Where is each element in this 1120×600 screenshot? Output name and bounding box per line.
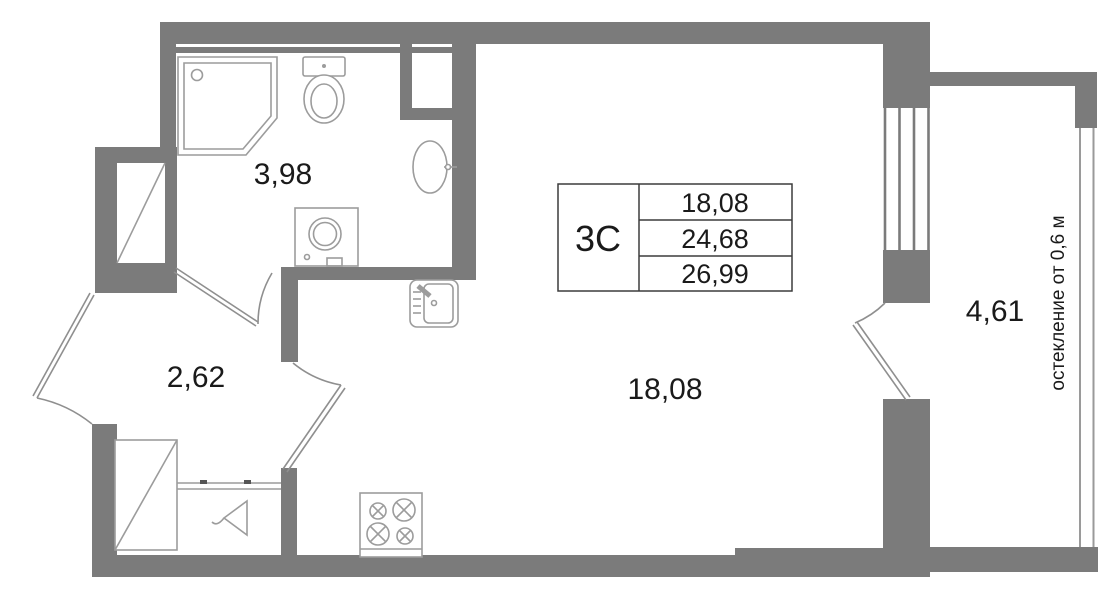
- bathroom-area-label: 3,98: [254, 158, 312, 191]
- bathroom-sink-faucet: [446, 165, 451, 170]
- wall-hall-stub-upper: [281, 267, 298, 362]
- balcony-glazing: [1080, 128, 1094, 547]
- wall-bathroom-bottom: [281, 267, 476, 280]
- wall-right-upper: [883, 44, 930, 108]
- stove: [360, 493, 422, 557]
- window-living-room: [885, 108, 929, 250]
- entrance-door: [33, 293, 94, 424]
- hallway-area-label: 2,62: [167, 361, 225, 394]
- wall-bathroom-right: [452, 44, 476, 280]
- glazing-note-label: остекление от 0,6 м: [1048, 215, 1069, 390]
- closet-rod: [177, 480, 281, 489]
- wall-balcony-bottom: [930, 547, 1098, 572]
- unit-area-total-balcony: 26,99: [681, 259, 749, 289]
- wall-balcony-top: [930, 72, 1075, 86]
- unit-area-total: 24,68: [681, 224, 749, 254]
- wall-right-lower: [883, 399, 930, 556]
- wall-left-lower: [92, 424, 117, 556]
- shower: [178, 57, 277, 155]
- hanger-icon: [212, 501, 247, 535]
- living-area-label: 18,08: [627, 373, 702, 406]
- unit-type-label: 3С: [575, 218, 621, 259]
- living-room-door: [283, 363, 345, 472]
- wall-left-upper: [160, 22, 176, 148]
- kitchen-sink: [410, 280, 458, 327]
- bathroom-sink: [413, 141, 457, 193]
- unit-area-living: 18,08: [681, 188, 749, 218]
- wall-niche-bottom: [400, 108, 452, 120]
- info-table: 3С 18,08 24,68 26,99: [558, 184, 792, 291]
- floor-plan-drawing: 3С 18,08 24,68 26,99 3,98 2,62 18,08 4,6…: [0, 0, 1120, 600]
- wall-bottom: [92, 555, 930, 577]
- balcony-door: [853, 303, 910, 400]
- toilet: [303, 57, 345, 123]
- wardrobe: [115, 440, 177, 550]
- balcony-area-label: 4,61: [966, 295, 1024, 328]
- wall-hall-stub-lower: [281, 468, 297, 556]
- wall-balcony-corner: [1075, 72, 1097, 128]
- floor-plan: 3С 18,08 24,68 26,99 3,98 2,62 18,08 4,6…: [0, 0, 1120, 600]
- bathroom-door: [174, 268, 272, 326]
- wall-right-middle: [883, 250, 930, 303]
- washing-machine: [295, 208, 358, 266]
- wall-top: [160, 22, 930, 44]
